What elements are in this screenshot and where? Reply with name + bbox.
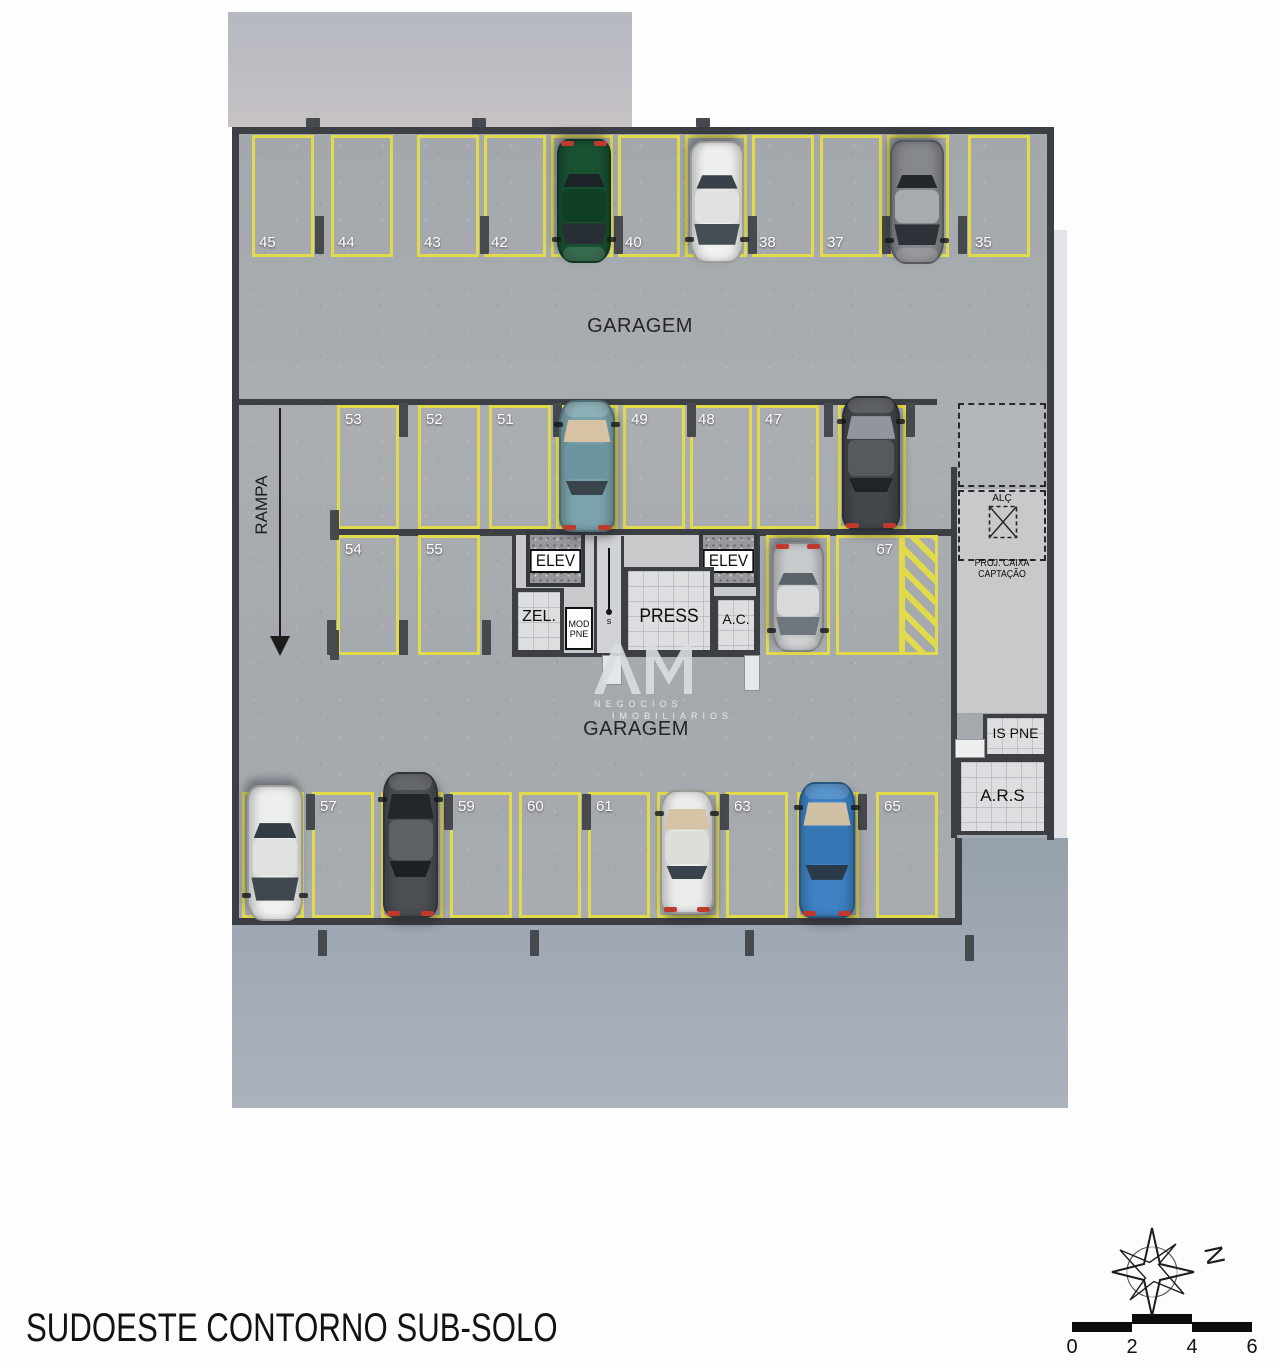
car-hood-highlight: [563, 247, 605, 261]
parking-spot-67: 67: [836, 535, 902, 655]
garagem-label-bottom: GARAGEM: [556, 718, 716, 741]
structural-column: [858, 794, 867, 830]
car-windshield: [387, 794, 433, 819]
parking-spot-53: 53: [337, 405, 399, 529]
car-rear-window: [806, 865, 849, 880]
spot-number: 52: [426, 412, 443, 427]
mod-pne-box: MOD PNE: [565, 607, 593, 650]
upper-building-mass: [228, 12, 632, 127]
parking-spot-38: 38: [752, 135, 814, 257]
car-taillight-right: [421, 911, 434, 916]
scale-tick: 6: [1240, 1336, 1264, 1359]
ramp-arrow: [279, 408, 281, 638]
stair-path-line: [608, 548, 610, 610]
garagem-label-top: GARAGEM: [560, 315, 720, 338]
structural-column: [958, 216, 967, 254]
wall-right: [1047, 127, 1054, 840]
car-windshield: [847, 416, 896, 439]
car-taillight-right: [883, 523, 896, 528]
spot-number: 63: [734, 799, 751, 814]
car-top-view-white: [690, 141, 744, 263]
ramp-label: RAMPA: [252, 450, 272, 560]
parking-spot-47: 47: [757, 405, 819, 529]
car-mirror-right: [685, 237, 694, 242]
structural-column: [720, 794, 729, 830]
mod-text: MOD: [569, 619, 590, 629]
am-logo: [592, 642, 696, 696]
structural-column: [330, 510, 339, 540]
spot-number: 38: [759, 235, 776, 250]
car-windshield: [694, 224, 739, 245]
scale-tick: 2: [1120, 1336, 1144, 1359]
parking-spot-55: 55: [418, 535, 480, 655]
car-windshield: [894, 224, 939, 245]
wall-left: [232, 127, 239, 925]
car-mirror-left: [794, 805, 803, 810]
car-roof: [848, 440, 894, 476]
structural-column: [748, 216, 757, 254]
car-mirror-right: [710, 811, 719, 816]
spot-number: 51: [497, 412, 514, 427]
parking-spot-49: 49: [623, 405, 685, 529]
car-roof: [895, 190, 938, 223]
car-hood-highlight: [848, 398, 894, 413]
core-vent-stub: [744, 655, 760, 691]
car-mirror-right: [611, 422, 620, 427]
compass-north-letter: N: [1198, 1243, 1231, 1268]
car-taillight-left: [846, 523, 859, 528]
structural-column: [315, 216, 324, 254]
column-stub: [472, 118, 486, 127]
car-taillight-right: [776, 544, 789, 549]
scale-tick: 0: [1060, 1336, 1084, 1359]
proj-caixa-label: PROJ. CAIXA CAPTAÇÃO: [958, 558, 1046, 580]
car-hood-highlight: [896, 248, 938, 262]
spot-number: 57: [320, 799, 337, 814]
ac-label: A.C.: [714, 611, 758, 627]
car-mirror-right: [896, 419, 905, 424]
spot-number: 35: [975, 235, 992, 250]
spot-number: 47: [765, 412, 782, 427]
parking-spot-51: 51: [489, 405, 551, 529]
car-mirror-right: [767, 628, 776, 633]
car-windshield: [803, 802, 850, 825]
car-top-view-green: [557, 139, 611, 263]
car-mirror-right: [242, 893, 251, 898]
car-rear-window: [896, 175, 937, 189]
spot-number: 37: [827, 235, 844, 250]
car-hood-highlight: [778, 638, 818, 650]
structural-column: [824, 403, 833, 437]
spot-number: 59: [458, 799, 475, 814]
is-pne-label: IS PNE: [983, 725, 1048, 741]
car-taillight-left: [664, 907, 677, 912]
wall-notch: [955, 838, 962, 925]
structural-column: [687, 403, 696, 437]
parking-spot-60: 60: [519, 792, 581, 918]
car-roof: [777, 586, 819, 616]
parking-spot-61: 61: [588, 792, 650, 918]
car-hood-highlight: [389, 774, 432, 790]
car-rear-window: [563, 174, 604, 188]
car-top-view-blue: [799, 782, 855, 918]
structural-column: [614, 216, 623, 254]
car-mirror-left: [299, 893, 308, 898]
car-roof: [565, 444, 610, 480]
car-mirror-left: [554, 422, 563, 427]
car-rear-window: [254, 823, 297, 838]
car-mirror-left: [740, 237, 749, 242]
pne-text: PNE: [570, 629, 589, 639]
car-top-view-teal: [559, 400, 615, 532]
parking-spot-40: 40: [618, 135, 680, 257]
scale-tick: 4: [1180, 1336, 1204, 1359]
car-rear-window: [666, 866, 707, 880]
wall-top: [232, 127, 1054, 134]
car-windshield: [251, 878, 298, 901]
parking-spot-42: 42: [484, 135, 546, 257]
car-top-view-white2: [247, 785, 303, 921]
structural-column: [906, 403, 915, 437]
parking-spot-45: 45: [252, 135, 314, 257]
elevator-label-left: ELEV: [530, 549, 581, 573]
car-taillight-right: [561, 141, 574, 146]
car-rear-window: [778, 573, 818, 585]
car-hood-highlight: [805, 784, 849, 799]
car-hood-highlight: [253, 904, 297, 919]
parking-spot-44: 44: [331, 135, 393, 257]
watermark-line2: IMOBILIARIOS: [612, 711, 733, 721]
car-rear-window: [390, 861, 432, 877]
car-rear-window: [566, 481, 609, 496]
car-windshield: [776, 617, 820, 636]
car-mirror-left: [940, 238, 949, 243]
car-roof: [253, 839, 298, 876]
dashed-area-upper: [958, 403, 1046, 487]
car-mirror-right: [434, 797, 443, 802]
press-label: PRESS: [628, 606, 711, 628]
car-taillight-right: [598, 525, 611, 530]
parking-spot-48: 48: [690, 405, 752, 529]
car-taillight-left: [594, 141, 607, 146]
spot-number: 44: [338, 235, 355, 250]
car-taillight-left: [803, 911, 816, 916]
car-rear-window: [849, 478, 893, 493]
column-stub: [745, 930, 754, 956]
spot-number: 65: [884, 799, 901, 814]
spot-number: 43: [424, 235, 441, 250]
floor-plan-canvas: RAMPA GARAGEM GARAGEM ELEV ELEV ZEL. MOD…: [0, 0, 1280, 1362]
spot-number: 55: [426, 542, 443, 557]
car-mirror-right: [851, 805, 860, 810]
parking-spot-35: 35: [968, 135, 1030, 257]
column-stub: [306, 118, 320, 127]
ramp-arrow-head: [270, 636, 290, 656]
car-roof: [805, 827, 850, 864]
wall-ramp-top: [239, 399, 332, 405]
zel-label: ZEL.: [514, 608, 564, 626]
stair-marker: s: [604, 616, 614, 626]
car-roof: [695, 190, 738, 223]
car-mirror-left: [655, 811, 664, 816]
structural-column: [306, 794, 315, 830]
alc-symbol: [988, 505, 1018, 539]
car-top-view-silver: [772, 542, 824, 652]
column-stub: [696, 118, 710, 127]
right-ground-strip: [1054, 230, 1067, 838]
car-hood-highlight: [565, 402, 609, 417]
wall-bottom: [232, 918, 962, 925]
car-mirror-left: [378, 797, 387, 802]
spot-number: 60: [527, 799, 544, 814]
car-top-view-dark: [842, 396, 900, 530]
ars-label: A.R.S: [957, 786, 1048, 806]
car-windshield: [563, 420, 610, 442]
car-mirror-right: [885, 238, 894, 243]
stair-path-dot: [606, 609, 612, 615]
elev-text: ELEV: [709, 551, 748, 571]
structural-column: [482, 620, 491, 655]
spot-number: 42: [491, 235, 508, 250]
scale-segment: [1072, 1322, 1132, 1332]
car-roof: [389, 820, 433, 859]
structural-column: [444, 794, 453, 830]
column-stub: [965, 935, 974, 961]
car-taillight-left: [563, 525, 576, 530]
spot-number: 48: [698, 412, 715, 427]
car-taillight-left: [807, 544, 820, 549]
watermark-line1: NEGOCIOS: [594, 699, 683, 709]
car-mirror-left: [607, 237, 616, 242]
car-taillight-left: [387, 911, 400, 916]
car-mirror-left: [837, 419, 846, 424]
car-windshield: [561, 223, 606, 244]
parking-spot-63: 63: [726, 792, 788, 918]
parking-spot-54: 54: [337, 535, 399, 655]
hatched-strip: [902, 535, 938, 655]
car-rear-window: [696, 175, 737, 188]
parking-spot-57: 57: [312, 792, 374, 918]
structural-column: [582, 794, 591, 830]
car-hood-highlight: [666, 792, 708, 806]
parking-spot-59: 59: [450, 792, 512, 918]
spot-number: 61: [596, 799, 613, 814]
car-roof: [562, 189, 605, 222]
drawing-title: SUDOESTE CONTORNO SUB-SOLO: [26, 1306, 558, 1351]
spot-number: 45: [259, 235, 276, 250]
compass-rose: N: [1100, 1222, 1240, 1322]
is-pne-fixture: [955, 739, 985, 758]
car-roof: [665, 831, 708, 864]
parking-spot-65: 65: [876, 792, 938, 918]
spot-number: 54: [345, 542, 362, 557]
car-top-view-dsuv: [383, 772, 438, 918]
spot-number: 49: [631, 412, 648, 427]
structural-column: [399, 620, 408, 655]
elev-text: ELEV: [536, 551, 575, 571]
car-mirror-left: [820, 628, 829, 633]
car-hood-highlight: [696, 248, 738, 261]
scale-segment: [1192, 1322, 1252, 1332]
car-top-view-gsuv: [890, 140, 944, 264]
parking-spot-52: 52: [418, 405, 480, 529]
spot-number: 67: [876, 542, 893, 557]
alc-label: ALÇ: [958, 493, 1046, 504]
car-top-view-hatchw: [660, 790, 714, 914]
column-stub: [318, 930, 327, 956]
spot-number: 53: [345, 412, 362, 427]
column-stub: [530, 930, 539, 956]
car-windshield: [664, 809, 709, 830]
structural-column: [480, 216, 489, 254]
structural-column: [330, 630, 339, 660]
spot-number: 40: [625, 235, 642, 250]
car-taillight-right: [697, 907, 710, 912]
car-mirror-right: [552, 237, 561, 242]
car-taillight-right: [838, 911, 851, 916]
parking-spot-37: 37: [820, 135, 882, 257]
structural-column: [399, 403, 408, 437]
parking-spot-43: 43: [417, 135, 479, 257]
